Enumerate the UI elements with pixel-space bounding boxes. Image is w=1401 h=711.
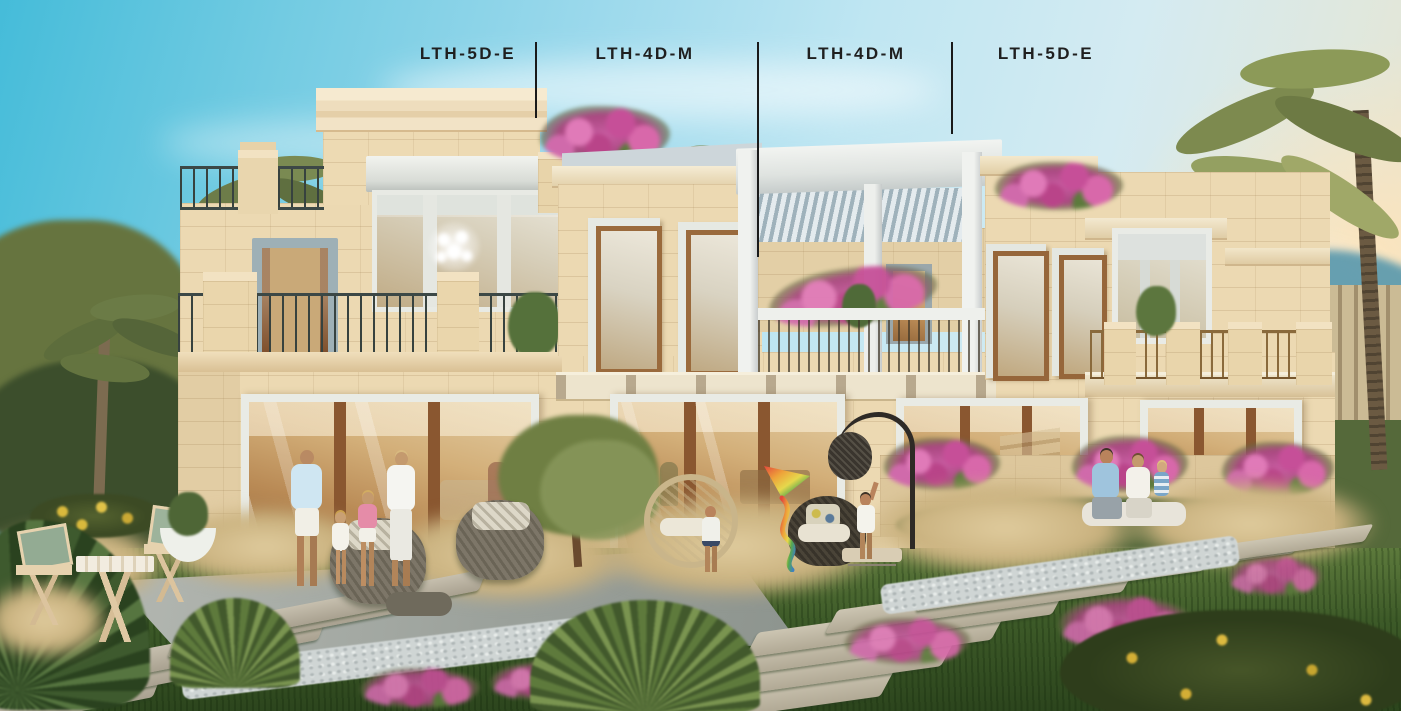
person-head xyxy=(300,450,314,465)
kite-tail xyxy=(782,498,793,570)
unit-label-4: LTH-5D-E xyxy=(971,44,1121,64)
person-legs xyxy=(705,546,717,572)
unit3-balustrade xyxy=(758,308,986,372)
person-baby xyxy=(1152,462,1172,518)
person-top xyxy=(857,505,875,533)
person-top xyxy=(1126,467,1150,499)
person-pants xyxy=(390,509,412,561)
unit-label-3: LTH-4D-M xyxy=(781,44,931,64)
unit1-tower-cornice xyxy=(316,88,547,132)
person-top xyxy=(358,504,377,529)
pink-flower-patch xyxy=(1228,556,1323,596)
terrace-railing xyxy=(180,166,238,210)
chair-seat xyxy=(16,565,72,575)
folding-chair-left xyxy=(14,525,84,630)
person-shirt xyxy=(291,464,322,510)
unit-label-text: LTH-4D-M xyxy=(807,44,906,63)
person-girl-pink xyxy=(355,492,381,586)
unit4-balcony-pier xyxy=(1104,322,1136,385)
bougainvillea-flowerbox xyxy=(995,162,1123,210)
pergola-post xyxy=(738,150,758,392)
unit-label-text: LTH-4D-M xyxy=(596,44,695,63)
person-boy xyxy=(700,506,722,572)
person-father-walking xyxy=(288,450,328,586)
unit-label-text: LTH-5D-E xyxy=(420,44,516,63)
person-legs xyxy=(860,533,872,559)
pergola-louvers xyxy=(756,188,968,242)
townhouse-render-scene: LTH-5D-E LTH-4D-M LTH-4D-M LTH-5D-E xyxy=(0,0,1401,711)
chandelier xyxy=(428,222,480,272)
person-father-sitting xyxy=(1090,450,1124,528)
unit-label-1: LTH-5D-E xyxy=(393,44,543,64)
unit2-window-a-glass xyxy=(596,226,662,374)
person-legs xyxy=(297,536,317,586)
unit-label-text: LTH-5D-E xyxy=(998,44,1094,63)
wicker-ottoman xyxy=(386,592,452,616)
person-mother-walking xyxy=(385,452,421,586)
unit-divider-line xyxy=(757,42,759,257)
terrace-pillar xyxy=(238,150,278,214)
person-legs-seated xyxy=(1092,497,1122,519)
person-shirt xyxy=(1092,463,1119,499)
rainbow-kite xyxy=(752,462,832,572)
table-legs xyxy=(84,572,146,642)
balcony-plant xyxy=(508,292,560,358)
person-head xyxy=(395,452,408,466)
unit4-parapet-right xyxy=(1225,248,1330,266)
unit4-balcony-pier xyxy=(1296,322,1332,385)
unit1-balcony-ledge xyxy=(178,352,562,372)
person-legs xyxy=(392,560,410,586)
person-skirt xyxy=(359,528,376,542)
chair-legs xyxy=(20,575,68,625)
egg-chair-basket xyxy=(828,432,872,480)
person-toddler xyxy=(330,512,352,586)
person-legs xyxy=(336,550,346,584)
unit4-window-c-glass xyxy=(993,251,1049,381)
unit-divider-line xyxy=(951,42,953,134)
person-shorts xyxy=(295,508,319,536)
pink-flower-patch xyxy=(845,618,970,664)
person-dress xyxy=(332,523,349,551)
potted-pine xyxy=(168,492,208,536)
unit-label-2: LTH-4D-M xyxy=(570,44,720,64)
unit4-balcony-pier xyxy=(1166,322,1200,385)
kite-sail xyxy=(764,466,810,498)
person-head xyxy=(1100,450,1113,464)
terrace-railing xyxy=(278,166,324,210)
balcony-plant xyxy=(1136,286,1176,336)
person-overalls xyxy=(1154,472,1169,496)
unit4-balcony-pier xyxy=(1228,322,1262,385)
person-mother-sitting xyxy=(1124,455,1154,527)
person-top xyxy=(702,517,720,547)
person-legs-seated xyxy=(1126,498,1152,518)
unit1-bay-cornice xyxy=(366,156,562,192)
pink-flower-patch xyxy=(360,668,480,708)
person-legs xyxy=(361,542,374,586)
wicker-chair-cushion xyxy=(472,502,530,530)
garden-tree-canopy xyxy=(540,440,660,540)
person-shirt xyxy=(387,465,415,511)
person-boy-kite xyxy=(854,490,880,560)
